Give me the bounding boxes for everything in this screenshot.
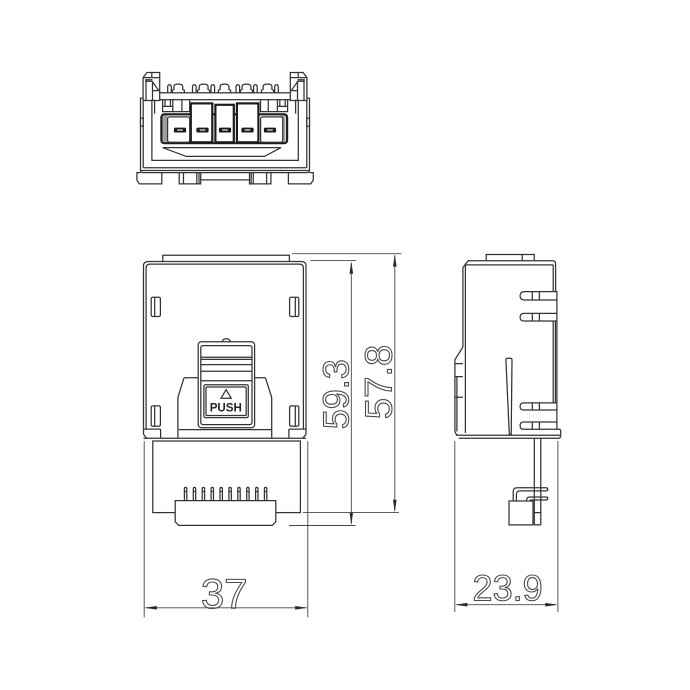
svg-text:23.9: 23.9 [473, 568, 543, 609]
svg-text:57.8: 57.8 [358, 345, 401, 420]
svg-text:PUSH: PUSH [210, 402, 242, 415]
svg-text:59.3: 59.3 [315, 359, 356, 429]
svg-text:37: 37 [201, 570, 248, 617]
